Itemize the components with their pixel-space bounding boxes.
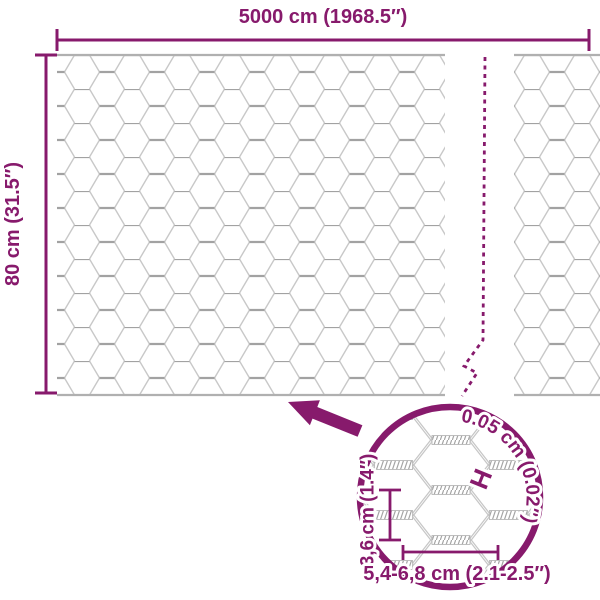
product-dimension-diagram: 5000 cm (1968.5″) 80 cm (31.5″) H 0.05 c… [0,0,600,600]
diagram-canvas: 5000 cm (1968.5″) 80 cm (31.5″) H 0.05 c… [0,0,600,600]
mesh-panel-continuation [514,55,600,395]
zoom-arrow-icon [288,400,362,437]
height-dimension: 80 cm (31.5″) [2,55,57,393]
break-indicator-line [462,57,485,396]
mesh-panel-main [57,55,445,395]
width-dimension-label: 5000 cm (1968.5″) [239,6,408,28]
height-dimension-label: 80 cm (31.5″) [2,162,24,286]
detail-magnifier: H 0.05 cm (0.02″) 3,6 cm (1.4″) 5,4-6,8 … [183,386,600,595]
mesh-height-label: 3,6 cm (1.4″) [358,454,379,567]
width-dimension: 5000 cm (1968.5″) [57,6,589,51]
mesh-width-label: 5,4-6,8 cm (2.1-2.5″) [363,563,550,585]
